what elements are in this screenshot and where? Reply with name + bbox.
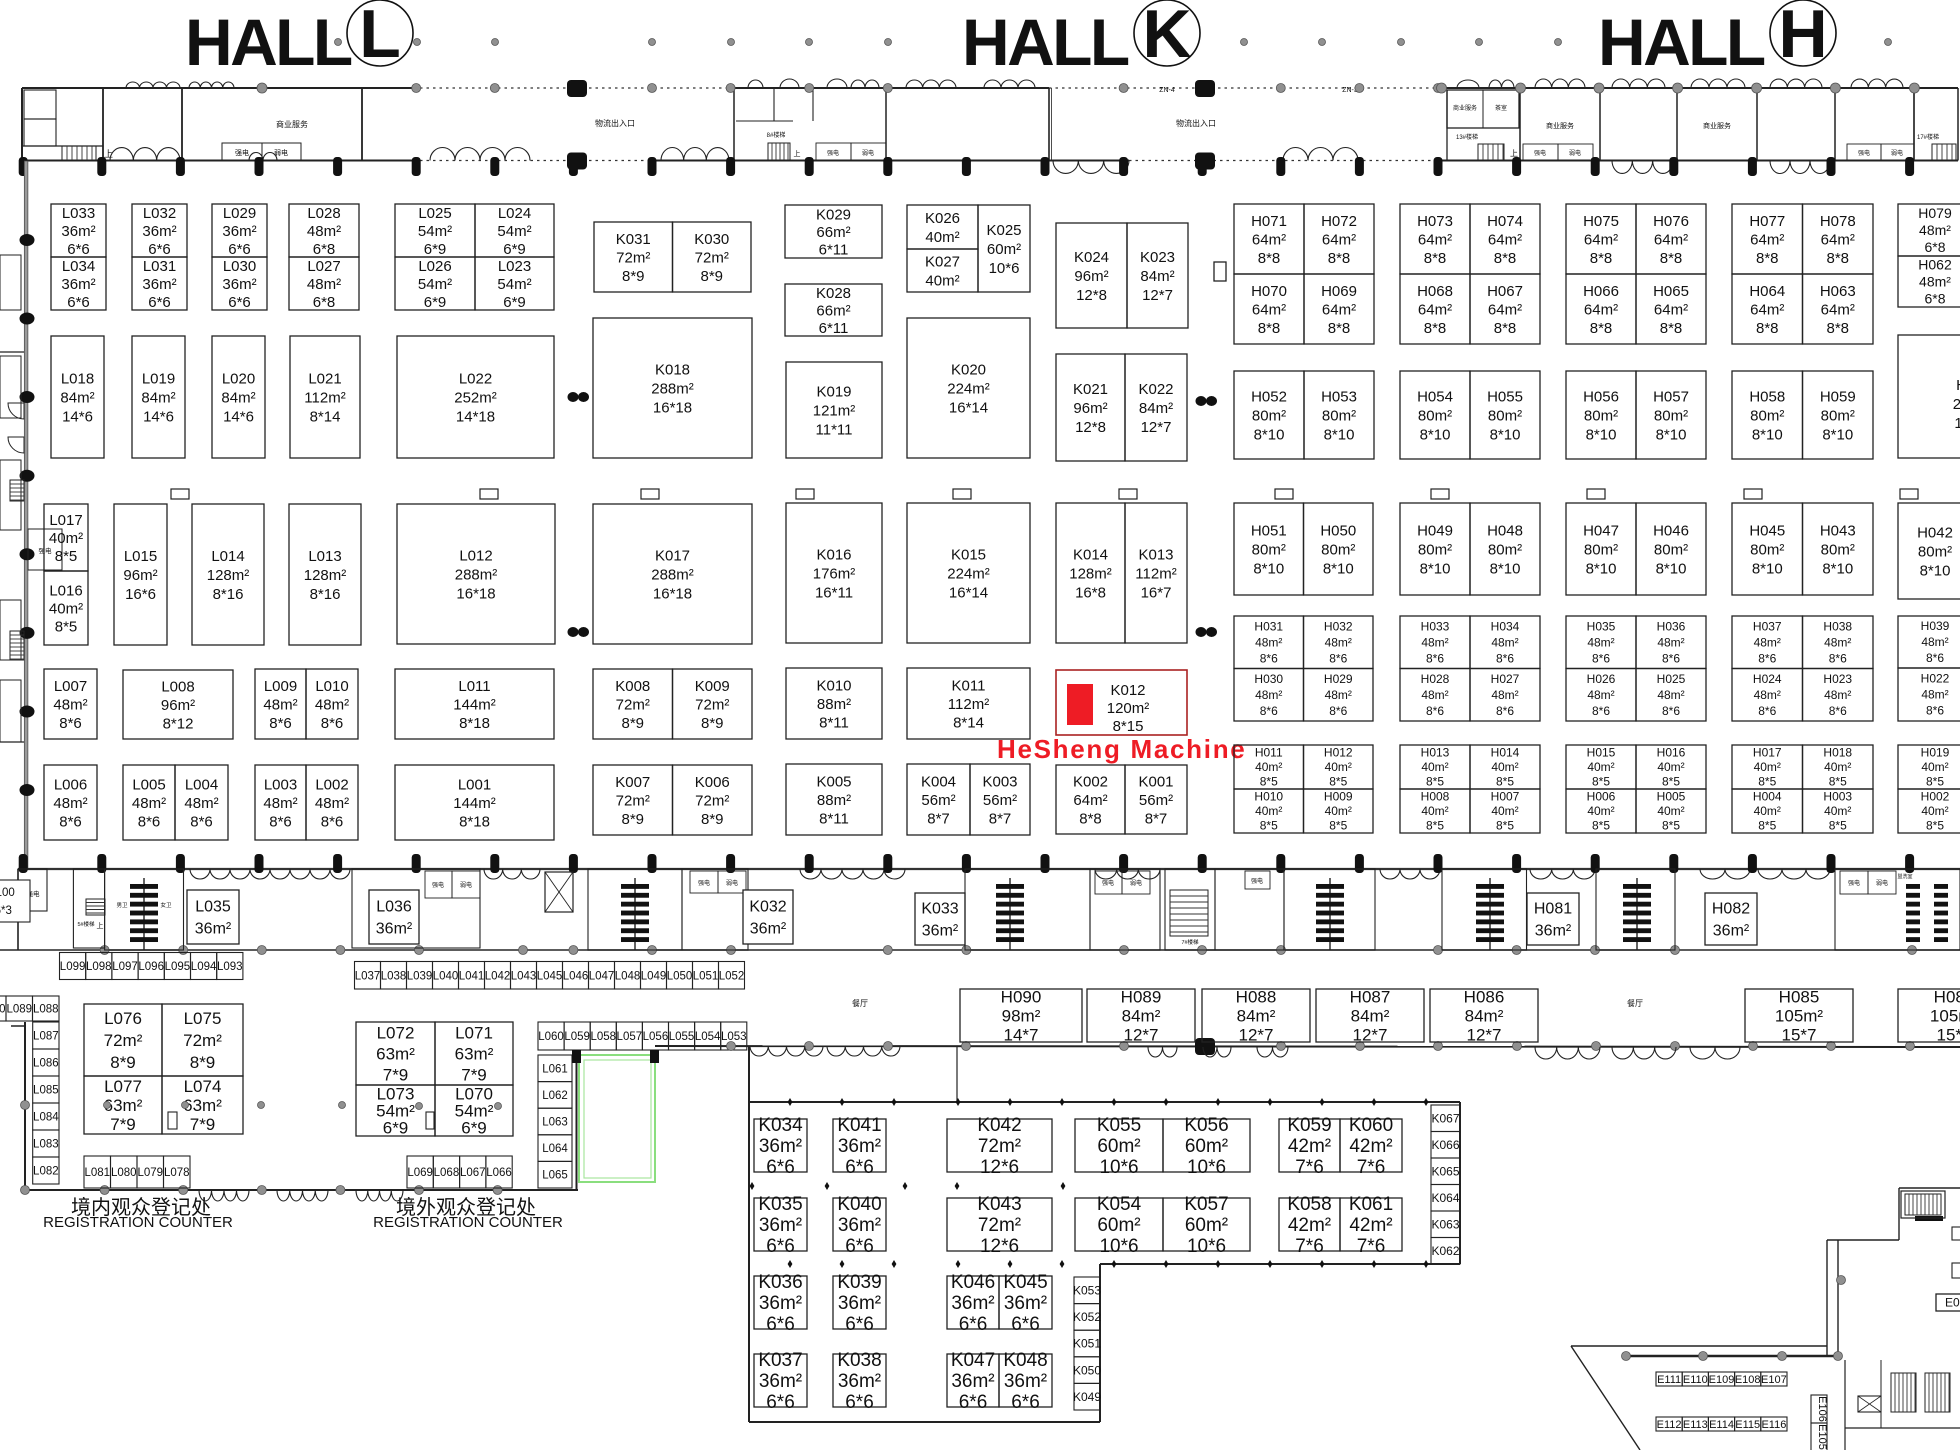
svg-text:40m²: 40m² <box>49 600 83 617</box>
svg-text:H090: H090 <box>1001 987 1042 1006</box>
svg-text:7*9: 7*9 <box>383 1065 409 1084</box>
svg-text:8#楼梯: 8#楼梯 <box>767 131 786 139</box>
svg-text:48m²: 48m² <box>1919 273 1951 289</box>
svg-text:40m²: 40m² <box>1421 804 1448 818</box>
svg-text:6*6: 6*6 <box>766 1392 795 1413</box>
svg-text:H088: H088 <box>1236 987 1277 1006</box>
svg-text:10*6: 10*6 <box>1099 1236 1138 1257</box>
svg-text:L041: L041 <box>459 970 485 982</box>
svg-text:112m²: 112m² <box>1135 565 1176 582</box>
svg-text:80m²: 80m² <box>1821 541 1855 558</box>
svg-text:K038: K038 <box>837 1350 881 1371</box>
svg-text:36m²: 36m² <box>376 921 413 938</box>
svg-text:8*6: 8*6 <box>269 813 292 830</box>
svg-text:8*6: 8*6 <box>1829 704 1847 718</box>
svg-text:36m²: 36m² <box>142 276 176 293</box>
svg-text:H076: H076 <box>1653 213 1689 230</box>
svg-text:H037: H037 <box>1753 619 1782 633</box>
svg-text:餐厅: 餐厅 <box>852 999 868 1008</box>
svg-text:6*6: 6*6 <box>67 294 90 311</box>
svg-text:K064: K064 <box>1431 1191 1459 1205</box>
svg-text:茶室: 茶室 <box>1495 104 1507 112</box>
svg-text:36m²: 36m² <box>922 923 959 940</box>
svg-text:54m²: 54m² <box>497 223 531 240</box>
svg-text:8*11: 8*11 <box>819 810 849 827</box>
svg-text:16*11: 16*11 <box>815 584 853 601</box>
svg-text:K032: K032 <box>749 899 786 916</box>
svg-text:L022: L022 <box>459 370 492 387</box>
svg-text:L046: L046 <box>563 970 589 982</box>
svg-text:8*10: 8*10 <box>1420 560 1451 577</box>
svg-text:H063: H063 <box>1820 283 1856 300</box>
svg-text:8*6: 8*6 <box>1662 651 1680 665</box>
svg-text:8*8: 8*8 <box>1328 320 1351 337</box>
svg-text:K062: K062 <box>1431 1244 1459 1258</box>
svg-text:H032: H032 <box>1324 619 1353 633</box>
svg-text:L017: L017 <box>49 512 82 529</box>
svg-text:36m²: 36m² <box>61 223 95 240</box>
svg-text:K058: K058 <box>1287 1194 1331 1215</box>
svg-text:E115: E115 <box>1735 1419 1760 1431</box>
svg-text:L042: L042 <box>485 970 511 982</box>
svg-text:8*10: 8*10 <box>1920 562 1951 579</box>
svg-text:L065: L065 <box>542 1170 568 1182</box>
svg-text:H024: H024 <box>1753 672 1782 686</box>
svg-text:L032: L032 <box>143 205 176 222</box>
svg-text:强电: 强电 <box>432 881 444 889</box>
svg-text:72m²: 72m² <box>978 1136 1021 1157</box>
svg-text:E106: E106 <box>1816 1396 1828 1422</box>
svg-text:H056: H056 <box>1583 388 1619 405</box>
svg-text:强电: 强电 <box>698 879 710 887</box>
svg-text:64m²: 64m² <box>1322 231 1356 248</box>
svg-text:288m²: 288m² <box>651 380 694 397</box>
svg-text:餐厅: 餐厅 <box>1627 999 1643 1008</box>
svg-text:8*10: 8*10 <box>1822 426 1853 443</box>
svg-text:12*6: 12*6 <box>980 1236 1019 1257</box>
svg-text:36m²: 36m² <box>951 1371 994 1392</box>
svg-text:L082: L082 <box>33 1166 59 1178</box>
svg-text:88m²: 88m² <box>817 792 851 809</box>
svg-text:K037: K037 <box>758 1350 802 1371</box>
svg-text:L051: L051 <box>693 970 719 982</box>
svg-text:72m²: 72m² <box>183 1031 222 1050</box>
svg-text:13#楼梯: 13#楼梯 <box>1456 133 1478 141</box>
svg-text:8*6: 8*6 <box>59 715 82 732</box>
svg-text:K024: K024 <box>1074 249 1109 266</box>
svg-text:80m²: 80m² <box>1918 543 1952 560</box>
svg-text:H027: H027 <box>1491 672 1520 686</box>
svg-text:H055: H055 <box>1487 388 1523 405</box>
svg-text:17#楼梯: 17#楼梯 <box>1917 133 1939 141</box>
svg-text:L087: L087 <box>33 1031 59 1043</box>
svg-text:L002: L002 <box>315 776 348 793</box>
svg-text:L088: L088 <box>33 1004 59 1016</box>
svg-text:8*6: 8*6 <box>1426 651 1444 665</box>
svg-text:H081: H081 <box>1534 901 1572 918</box>
svg-text:48m²: 48m² <box>132 795 166 812</box>
svg-text:8*6: 8*6 <box>59 813 82 830</box>
svg-text:6*9: 6*9 <box>503 241 526 258</box>
svg-text:L012: L012 <box>459 547 492 564</box>
svg-text:L038: L038 <box>381 970 407 982</box>
svg-text:H011: H011 <box>1255 746 1283 760</box>
svg-text:36m²: 36m² <box>222 223 256 240</box>
svg-text:E105: E105 <box>1816 1424 1828 1450</box>
svg-text:K063: K063 <box>1431 1217 1459 1231</box>
svg-text:上: 上 <box>97 921 104 930</box>
svg-text:64m²: 64m² <box>1750 231 1784 248</box>
svg-text:L093: L093 <box>217 961 243 973</box>
svg-text:K057: K057 <box>1184 1194 1228 1215</box>
svg-text:8*10: 8*10 <box>1490 426 1521 443</box>
svg-text:8*8: 8*8 <box>1494 320 1517 337</box>
svg-text:L086: L086 <box>33 1058 59 1070</box>
svg-text:6*6: 6*6 <box>845 1314 874 1335</box>
svg-text:40m²: 40m² <box>1754 804 1781 818</box>
svg-text:252m²: 252m² <box>454 389 497 406</box>
svg-text:7*6: 7*6 <box>1295 1236 1324 1257</box>
svg-text:K040: K040 <box>837 1194 881 1215</box>
svg-text:8*6: 8*6 <box>1260 651 1278 665</box>
svg-text:16*14: 16*14 <box>949 584 988 601</box>
svg-text:L023: L023 <box>498 258 531 275</box>
svg-text:6*6: 6*6 <box>1011 1314 1040 1335</box>
svg-text:64m²: 64m² <box>1750 301 1784 318</box>
svg-text:8*9: 8*9 <box>701 811 724 828</box>
svg-text:40m²: 40m² <box>1921 804 1948 818</box>
svg-text:224m²: 224m² <box>947 565 990 582</box>
svg-text:11*11: 11*11 <box>816 421 853 438</box>
svg-text:H045: H045 <box>1749 522 1785 539</box>
svg-text:K048: K048 <box>1003 1350 1047 1371</box>
svg-text:H038: H038 <box>1823 619 1852 633</box>
svg-text:16*14: 16*14 <box>949 399 988 416</box>
svg-text:L075: L075 <box>184 1009 222 1028</box>
svg-text:L072: L072 <box>377 1023 415 1042</box>
svg-text:商业服务: 商业服务 <box>1453 104 1477 112</box>
svg-text:L080: L080 <box>111 1167 137 1179</box>
svg-text:E110: E110 <box>1683 1374 1708 1386</box>
svg-text:14*7: 14*7 <box>1004 1025 1039 1044</box>
svg-text:K016: K016 <box>816 546 851 563</box>
svg-text:64m²: 64m² <box>1252 231 1286 248</box>
svg-text:256m²: 256m² <box>1953 396 1960 413</box>
svg-text:L062: L062 <box>542 1090 568 1102</box>
svg-text:64m²: 64m² <box>1584 301 1618 318</box>
svg-text:84m²: 84m² <box>1139 400 1173 417</box>
svg-text:8*6: 8*6 <box>1592 651 1610 665</box>
svg-text:L058: L058 <box>590 1031 616 1043</box>
svg-text:L066: L066 <box>486 1167 512 1179</box>
svg-text:40m²: 40m² <box>1325 760 1352 774</box>
svg-text:K050: K050 <box>1073 1363 1101 1377</box>
svg-text:8*5: 8*5 <box>1758 775 1776 789</box>
svg-text:12*7: 12*7 <box>1124 1025 1159 1044</box>
svg-text:12*7: 12*7 <box>1141 419 1172 436</box>
svg-text:6*6: 6*6 <box>67 241 90 258</box>
svg-text:L033: L033 <box>62 205 95 222</box>
svg-text:K027: K027 <box>925 253 960 270</box>
svg-text:8*5: 8*5 <box>1329 775 1347 789</box>
svg-text:8*6: 8*6 <box>1496 704 1514 718</box>
svg-text:8*6: 8*6 <box>1758 651 1776 665</box>
svg-text:H086: H086 <box>1464 987 1505 1006</box>
svg-text:L028: L028 <box>307 205 340 222</box>
svg-text:12*7: 12*7 <box>1353 1025 1388 1044</box>
svg-text:40m²: 40m² <box>1255 804 1282 818</box>
svg-text:8*10: 8*10 <box>1822 560 1853 577</box>
svg-text:48m²: 48m² <box>307 276 341 293</box>
svg-text:L034: L034 <box>62 258 95 275</box>
svg-text:128m²: 128m² <box>1069 565 1112 582</box>
svg-text:48m²: 48m² <box>315 795 349 812</box>
svg-text:96m²: 96m² <box>123 567 157 584</box>
svg-text:H005: H005 <box>1657 790 1686 804</box>
svg-text:105m²: 105m² <box>1775 1006 1824 1025</box>
svg-text:8*6: 8*6 <box>321 813 344 830</box>
svg-text:L013: L013 <box>308 548 341 565</box>
svg-text:64m²: 64m² <box>1252 301 1286 318</box>
svg-text:8*6: 8*6 <box>138 813 161 830</box>
svg-text:强电: 强电 <box>39 546 53 555</box>
svg-text:48m²: 48m² <box>1587 635 1614 649</box>
svg-text:88m²: 88m² <box>817 696 851 713</box>
svg-text:H034: H034 <box>1491 619 1520 633</box>
svg-text:36m²: 36m² <box>759 1136 802 1157</box>
svg-text:L081: L081 <box>84 1167 110 1179</box>
svg-text:8*9: 8*9 <box>700 268 723 285</box>
svg-text:6*8: 6*8 <box>1924 239 1945 255</box>
svg-text:L014: L014 <box>211 548 244 565</box>
svg-text:144m²: 144m² <box>453 696 496 713</box>
svg-text:40m²: 40m² <box>1754 760 1781 774</box>
svg-text:H077: H077 <box>1749 213 1785 230</box>
svg-text:10*6: 10*6 <box>989 260 1020 277</box>
svg-text:8*5: 8*5 <box>1829 775 1847 789</box>
svg-text:6*6: 6*6 <box>766 1236 795 1257</box>
svg-text:16*16: 16*16 <box>1954 415 1960 432</box>
svg-text:H029: H029 <box>1324 672 1353 686</box>
svg-text:H007: H007 <box>1491 790 1520 804</box>
svg-text:E112: E112 <box>1657 1419 1682 1431</box>
svg-text:80m²: 80m² <box>1252 541 1286 558</box>
svg-text:224m²: 224m² <box>947 380 990 397</box>
svg-text:L059: L059 <box>564 1031 590 1043</box>
svg-text:L: L <box>359 0 401 72</box>
svg-text:H009: H009 <box>1324 790 1353 804</box>
svg-text:48m²: 48m² <box>1824 688 1851 702</box>
svg-text:8*8: 8*8 <box>1756 320 1779 337</box>
svg-text:80m²: 80m² <box>1418 541 1452 558</box>
svg-text:6*9: 6*9 <box>503 294 526 311</box>
svg-text:84m²: 84m² <box>221 389 255 406</box>
svg-text:L027: L027 <box>307 258 340 275</box>
svg-text:8*10: 8*10 <box>1586 426 1617 443</box>
svg-text:8*6: 8*6 <box>269 715 292 732</box>
svg-text:H004: H004 <box>1753 790 1782 804</box>
svg-text:10*6: 10*6 <box>1099 1157 1138 1178</box>
svg-text:80m²: 80m² <box>1252 407 1286 424</box>
svg-text:K035: K035 <box>758 1194 802 1215</box>
svg-text:L071: L071 <box>455 1023 493 1042</box>
svg-text:64m²: 64m² <box>1488 301 1522 318</box>
svg-text:48m²: 48m² <box>1921 635 1948 649</box>
svg-text:128m²: 128m² <box>207 567 250 584</box>
svg-text:E113: E113 <box>1683 1419 1708 1431</box>
svg-text:K013: K013 <box>1138 546 1173 563</box>
svg-text:98m²: 98m² <box>1002 1006 1041 1025</box>
svg-text:48m²: 48m² <box>1657 688 1684 702</box>
svg-text:16*18: 16*18 <box>456 585 495 602</box>
svg-text:8*6: 8*6 <box>1592 704 1610 718</box>
svg-text:14*6: 14*6 <box>223 408 254 425</box>
svg-text:8*6: 8*6 <box>1329 651 1347 665</box>
svg-text:L060: L060 <box>538 1031 564 1043</box>
svg-text:L004: L004 <box>185 776 218 793</box>
svg-text:K041: K041 <box>837 1115 881 1136</box>
svg-text:8*18: 8*18 <box>459 813 490 830</box>
svg-text:64m²: 64m² <box>1654 301 1688 318</box>
svg-text:HALL: HALL <box>962 5 1129 79</box>
svg-text:72m²: 72m² <box>104 1031 143 1050</box>
svg-text:14*6: 14*6 <box>62 408 93 425</box>
svg-text:8*10: 8*10 <box>1586 560 1617 577</box>
svg-text:12*7: 12*7 <box>1467 1025 1502 1044</box>
svg-text:H014: H014 <box>1491 746 1520 760</box>
svg-text:8*6: 8*6 <box>1829 651 1847 665</box>
svg-text:40m²: 40m² <box>1587 760 1614 774</box>
svg-text:K031: K031 <box>616 231 651 248</box>
svg-text:强电: 强电 <box>1102 879 1114 887</box>
svg-text:H030: H030 <box>1254 672 1283 686</box>
svg-text:80m²: 80m² <box>1488 407 1522 424</box>
svg-text:42m²: 42m² <box>1288 1136 1331 1157</box>
svg-text:H066: H066 <box>1583 283 1619 300</box>
svg-text:64m²: 64m² <box>1584 231 1618 248</box>
svg-text:H061: H061 <box>1956 377 1960 394</box>
svg-text:L030: L030 <box>223 258 256 275</box>
svg-text:L039: L039 <box>407 970 433 982</box>
svg-text:8*18: 8*18 <box>459 715 490 732</box>
svg-text:HeSheng Machine: HeSheng Machine <box>997 734 1246 764</box>
svg-text:上: 上 <box>1510 149 1518 158</box>
svg-text:L099: L099 <box>60 961 86 973</box>
svg-text:K033: K033 <box>921 901 958 918</box>
svg-text:288m²: 288m² <box>651 566 694 583</box>
svg-text:强电: 强电 <box>1251 877 1263 885</box>
svg-text:7*9: 7*9 <box>110 1115 136 1134</box>
svg-text:6*11: 6*11 <box>819 320 849 337</box>
svg-text:L064: L064 <box>542 1143 568 1155</box>
svg-text:K055: K055 <box>1097 1115 1141 1136</box>
svg-text:36m²: 36m² <box>195 921 232 938</box>
svg-text:K020: K020 <box>951 361 986 378</box>
svg-text:8*5: 8*5 <box>1926 775 1944 789</box>
svg-text:H039: H039 <box>1921 619 1950 633</box>
svg-text:8*5: 8*5 <box>55 618 78 635</box>
svg-text:8*5: 8*5 <box>1758 819 1776 833</box>
svg-text:8*6: 8*6 <box>1426 704 1444 718</box>
svg-text:112m²: 112m² <box>304 389 345 406</box>
svg-text:8*10: 8*10 <box>1253 560 1284 577</box>
svg-text:72m²: 72m² <box>978 1215 1021 1236</box>
svg-text:L057: L057 <box>617 1031 643 1043</box>
svg-text:K011: K011 <box>952 677 986 694</box>
svg-text:K061: K061 <box>1349 1194 1393 1215</box>
svg-text:K018: K018 <box>655 361 690 378</box>
svg-text:72m²: 72m² <box>616 249 650 266</box>
svg-text:64m²: 64m² <box>1821 231 1855 248</box>
svg-text:96m²: 96m² <box>161 697 195 714</box>
svg-text:8*6: 8*6 <box>1926 704 1944 718</box>
svg-text:H084: H084 <box>1934 987 1960 1006</box>
svg-text:K019: K019 <box>816 383 851 400</box>
svg-text:K: K <box>1142 0 1191 72</box>
svg-text:H026: H026 <box>1587 672 1616 686</box>
svg-text:8*6: 8*6 <box>1329 704 1347 718</box>
svg-text:60m²: 60m² <box>1097 1136 1140 1157</box>
svg-text:8*15: 8*15 <box>1113 718 1144 735</box>
svg-text:K066: K066 <box>1431 1138 1459 1152</box>
svg-text:H035: H035 <box>1587 619 1616 633</box>
svg-text:L036: L036 <box>376 899 412 916</box>
svg-text:L077: L077 <box>104 1077 142 1096</box>
svg-text:L052: L052 <box>719 970 745 982</box>
svg-text:L068: L068 <box>434 1167 460 1179</box>
svg-text:H054: H054 <box>1417 388 1453 405</box>
svg-text:66m²: 66m² <box>816 224 850 241</box>
svg-text:L089: L089 <box>6 1004 32 1016</box>
svg-text:H046: H046 <box>1653 522 1689 539</box>
svg-text:8*14: 8*14 <box>310 408 341 425</box>
svg-text:H028: H028 <box>1421 672 1450 686</box>
svg-text:48m²: 48m² <box>1587 688 1614 702</box>
svg-text:8*5: 8*5 <box>1662 819 1680 833</box>
svg-text:60m²: 60m² <box>1097 1215 1140 1236</box>
svg-text:L100: L100 <box>0 887 15 899</box>
svg-text:弱电: 弱电 <box>1891 149 1903 157</box>
svg-text:H087: H087 <box>1350 987 1391 1006</box>
svg-text:8*8: 8*8 <box>1756 250 1779 267</box>
svg-text:64m²: 64m² <box>1418 231 1452 248</box>
svg-text:L020: L020 <box>222 370 255 387</box>
svg-text:K026: K026 <box>925 210 960 227</box>
svg-text:6*6: 6*6 <box>1011 1392 1040 1413</box>
svg-text:8*8: 8*8 <box>1258 250 1281 267</box>
svg-text:6*6: 6*6 <box>845 1157 874 1178</box>
svg-text:L029: L029 <box>223 205 256 222</box>
svg-text:L026: L026 <box>418 258 451 275</box>
svg-text:56m²: 56m² <box>1139 792 1173 809</box>
svg-text:16*8: 16*8 <box>1075 584 1106 601</box>
svg-text:K054: K054 <box>1097 1194 1142 1215</box>
svg-text:物流出入口: 物流出入口 <box>1176 118 1216 128</box>
svg-text:8*8: 8*8 <box>1660 320 1683 337</box>
svg-text:H079: H079 <box>1918 205 1952 221</box>
svg-text:弱电: 弱电 <box>862 149 874 157</box>
svg-text:8*10: 8*10 <box>1752 560 1783 577</box>
svg-text:48m²: 48m² <box>1325 635 1352 649</box>
svg-text:7*6: 7*6 <box>1295 1157 1324 1178</box>
svg-text:48m²: 48m² <box>1754 688 1781 702</box>
svg-text:L079: L079 <box>137 1167 163 1179</box>
svg-text:40m²: 40m² <box>1921 760 1948 774</box>
svg-text:48m²: 48m² <box>263 795 297 812</box>
svg-text:8*5: 8*5 <box>1496 819 1514 833</box>
svg-text:L025: L025 <box>418 205 451 222</box>
svg-text:14*6: 14*6 <box>143 408 174 425</box>
